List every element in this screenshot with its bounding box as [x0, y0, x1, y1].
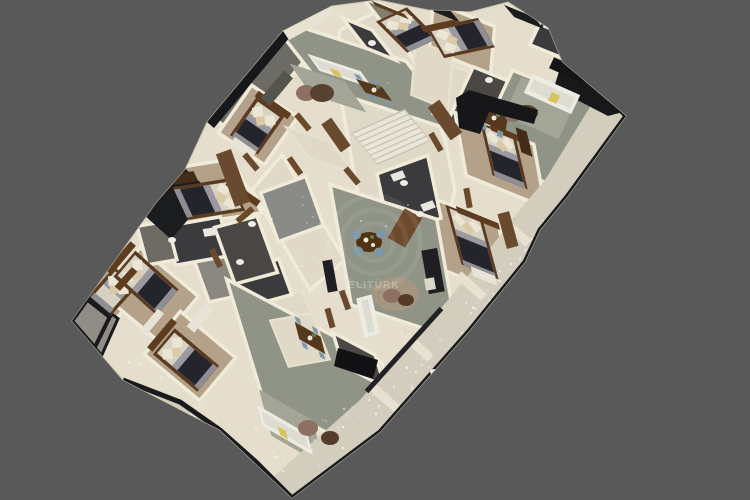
svg-text:ELITÜRK: ELITÜRK — [348, 278, 400, 291]
